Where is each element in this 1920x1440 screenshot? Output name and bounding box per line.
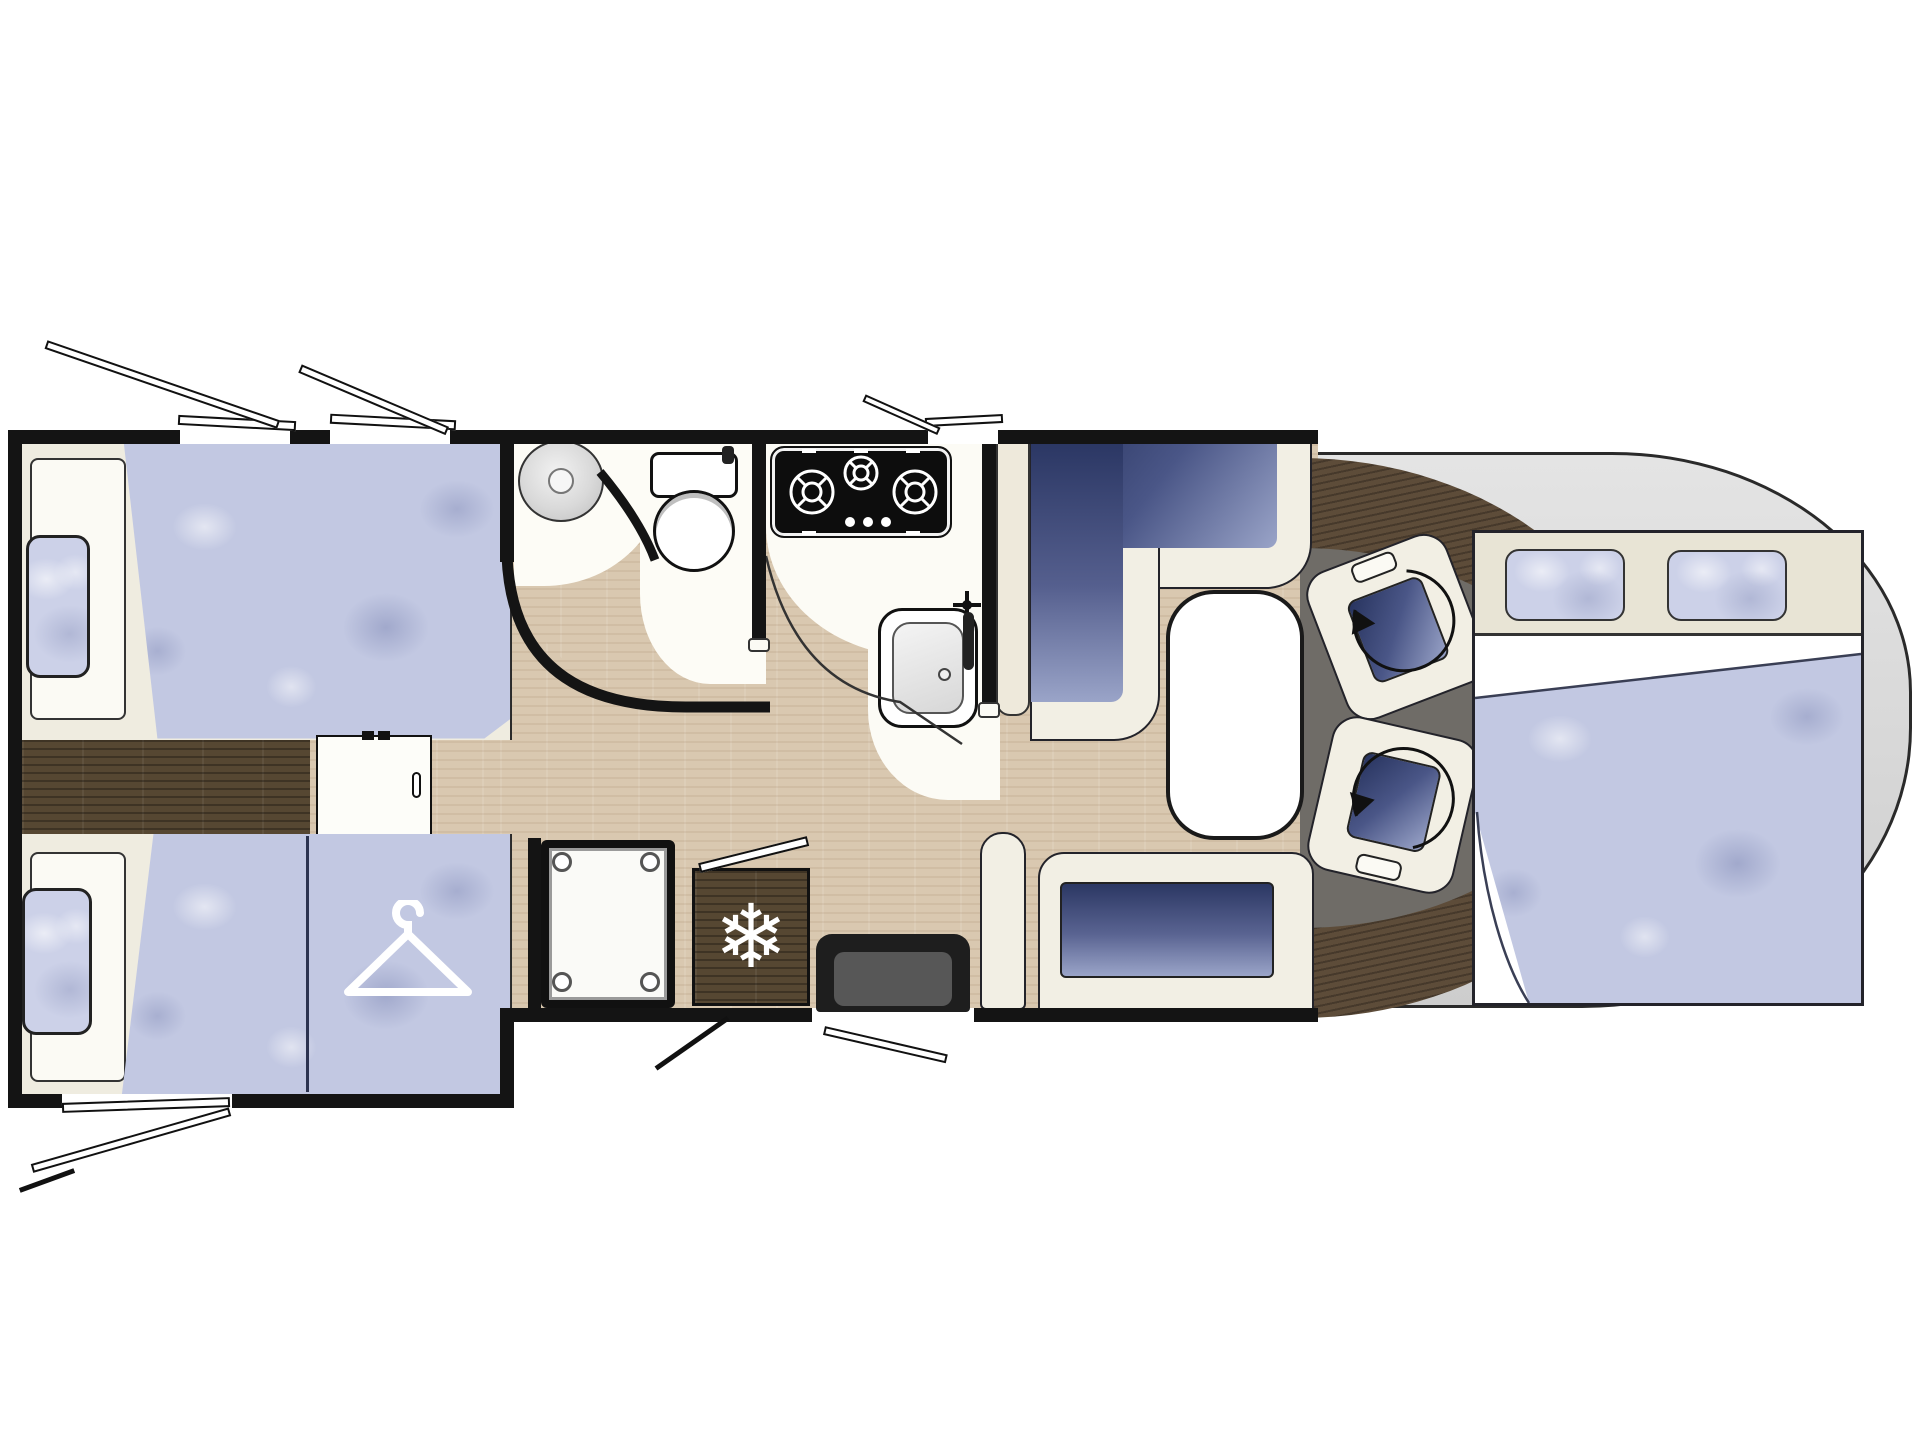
wall-shower-left <box>528 838 541 1010</box>
door-track-tick <box>378 731 390 740</box>
sink-drain <box>938 668 951 681</box>
window-gap <box>330 430 450 444</box>
bed-top-mattress <box>118 444 512 740</box>
bedroom-window <box>26 535 90 678</box>
toilet-flush-button[interactable] <box>722 446 734 464</box>
window-open-strut <box>862 394 940 435</box>
basin-drain <box>548 468 574 494</box>
shower-corner-fitting <box>552 852 572 872</box>
shower-corner-fitting <box>640 972 660 992</box>
bedroom-step-floor <box>22 740 310 834</box>
wall-step-connector <box>500 1008 514 1108</box>
bench-arm-pillar <box>980 832 1026 1010</box>
window-open-strut <box>31 1107 232 1172</box>
quilt-fold-line <box>1475 636 1861 1003</box>
snowflake-icon: ❄ <box>714 893 788 981</box>
window-gap <box>180 430 290 444</box>
wall-bedroom-bathroom <box>500 430 514 562</box>
shower-corner-fitting <box>640 852 660 872</box>
sliding-door-handle[interactable] <box>412 772 421 798</box>
l-bench-cushion-vertical[interactable] <box>1031 444 1123 702</box>
bedroom-window <box>22 888 92 1035</box>
floorplan-stage: ❄ <box>0 0 1920 1440</box>
toilet-bowl <box>653 490 735 572</box>
wall-end-cap <box>748 638 770 652</box>
window-open-tick <box>19 1168 75 1193</box>
wardrobe-divider <box>306 836 309 1092</box>
shower-corner-fitting <box>552 972 572 992</box>
wall-left <box>8 430 22 1108</box>
kitchen-sink-basin <box>892 622 964 714</box>
drop-down-bed <box>1472 530 1864 1006</box>
burner-icons <box>772 448 950 536</box>
bed-pillow <box>1505 549 1625 621</box>
wall-end-cap <box>978 702 1000 718</box>
dinette-side-panel <box>996 440 1030 716</box>
dinette-table[interactable] <box>1166 590 1304 840</box>
side-bench-cushion[interactable] <box>1060 882 1274 978</box>
refrigerator: ❄ <box>692 868 810 1006</box>
wall-bathroom-kitchen <box>752 430 766 648</box>
hanger-icon <box>338 900 478 1010</box>
faucet-body <box>963 612 974 670</box>
bed-pillow <box>1667 550 1787 621</box>
wall-kitchen-dinette <box>982 430 996 714</box>
window-open-strut <box>45 340 281 429</box>
entry-door-swing <box>823 1026 948 1063</box>
entry-step-inner <box>834 952 952 1006</box>
door-track-tick <box>362 731 374 740</box>
entry-door-line <box>655 1016 730 1071</box>
gas-hob <box>770 446 952 538</box>
